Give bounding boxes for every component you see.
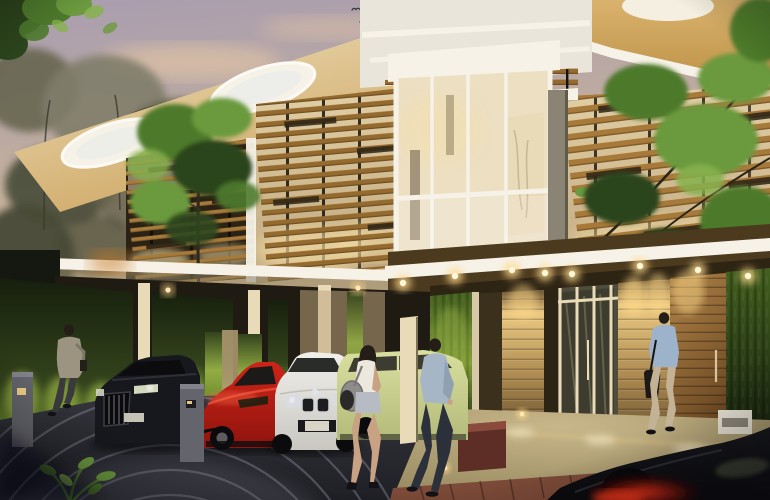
townhouse-dusk-rendering: Dusk photorealistic rendering of a moder…	[0, 0, 770, 500]
vignette-overlay	[0, 0, 770, 500]
rendering-canvas: Dusk photorealistic rendering of a moder…	[0, 0, 770, 500]
